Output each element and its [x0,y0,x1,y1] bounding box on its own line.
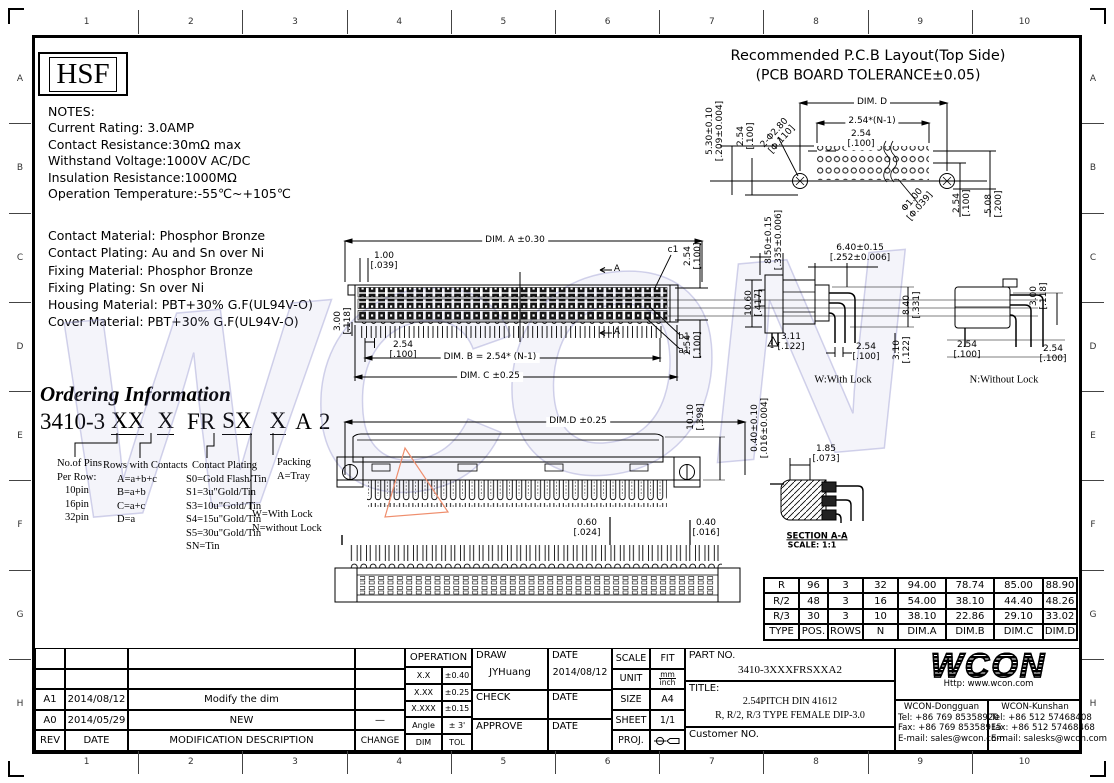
hsf-logo-text: HSF [49,57,116,92]
dim-label: 2.54 [.100] [953,189,973,216]
dim-label: 3.11 [.122] [777,333,804,353]
ordering-title: Ordering Information [40,382,231,407]
spec-cell: TYPE [764,624,799,639]
section-marker: A [614,265,620,275]
dim-label: 1.85 [.073] [812,445,839,465]
material-line: Housing Material: PBT+30% G.F(UL94V-O) [48,296,313,313]
drawing-title-line1: 2.54PITCH DIN 41612 [686,696,894,707]
spec-cell: R/2 [764,593,799,608]
row-label: c1 [668,246,679,256]
spec-cell: R/3 [764,609,799,624]
section-scale: SCALE: 1:1 [788,542,837,551]
corner-mark [1090,761,1106,777]
note-line: Current Rating: 3.0AMP [48,120,291,136]
revision-flag: 1 [770,343,774,351]
size-value: A4 [650,689,685,710]
note-line: Insulation Resistance:1000MΩ [48,170,291,186]
wcon-logo-cell: WCON Http: www.wcon.com [895,648,1082,700]
dim-label: 2.54*(N-1) [845,117,898,127]
meta-table: SCALEFIT UNIT mminch SIZEA4 SHEET1/1 PRO… [612,648,685,751]
dim-label: 0.40 [.016] [692,519,719,539]
office-email: E-mail: salesks@wcon.com [991,734,1079,745]
materials-block: Contact Material: Phosphor Bronze Contac… [48,227,313,331]
wcon-url: Http: www.wcon.com [896,679,1081,689]
dim-label: 5.08 [.200] [985,190,1005,217]
ordering-pins-legend: No.of Pins Per Row: 10pin 16pin 32pin [57,457,102,525]
spec-table: R9633294.0078.7485.0088.90 R/24831654.00… [763,577,1078,641]
view-caption: W:With Lock [814,375,871,386]
dim-label: 2.54 [.100] [684,242,704,269]
rev-header: REV [35,730,65,751]
dim-label: 0.60 [.024] [573,519,600,539]
check-cell: CHECK [472,690,548,719]
office-email: E-mail: sales@wcon.com [898,734,985,745]
dim-label: 2.54 [.100] [852,343,879,363]
rev-header: MODIFICATION DESCRIPTION [128,730,355,751]
dim-label: 5.30±0.10 [.209±0.004] [706,101,726,161]
rev-date: 2014/08/12 [65,689,128,710]
ordering-packing-legend: Packing A=Tray [277,456,311,483]
rev-date: 2014/05/29 [65,710,128,731]
dim-label: DIM. C ±0.25 [457,372,523,382]
dim-label: 2.54 [.100] [1039,345,1066,365]
material-line: Contact Material: Phosphor Bronze [48,227,313,244]
office-fax: Fax: +86 769 85358915 [898,723,985,734]
rev-desc: NEW [128,710,355,731]
dim-label: 2.54 [.100] [844,130,877,150]
material-line: Contact Plating: Au and Sn over Ni [48,244,313,261]
ordering-lock-legend: W=With Lock N=without Lock [252,508,322,535]
cover-view-drawing [325,395,775,520]
dim-label: DIM. A ±0.30 [482,236,548,246]
tolerance-title: OPERATION [405,648,472,667]
office-fax: Fax: +86 512 57468468 [991,723,1079,734]
dim-label: DIM. D [854,98,890,108]
dim-label: 8.40 [.331] [903,291,923,318]
dim-label: 0.40±0.10 [.016±0.004] [751,398,771,458]
dim-label: 10.60 [.417] [745,289,765,316]
wcon-kunshan-cell: WCON-Kunshan Tel: +86 512 57468408 Fax: … [988,700,1082,751]
border-rows-right: ABCDEFGH [1082,35,1104,748]
dim-label: 3.00 [.118] [1030,282,1050,309]
approve-cell: APPROVE [472,719,548,751]
draw-cell: DRAW JYHuang [472,648,548,690]
dim-label: 1.00 [.039] [370,252,397,272]
hsf-logo: HSF [38,52,128,96]
tolerance-table: OPERATION X.X±0.40 X.XX±0.25 X.XXX±0.15 … [405,648,472,751]
material-line: Fixing Material: Phosphor Bronze [48,262,313,279]
corner-mark [1090,8,1106,24]
border-rows-left: ABCDEFGH [9,35,31,748]
with-lock-view-drawing [700,215,930,390]
projection-symbol [650,730,685,751]
rev-header: CHANGE [355,730,405,751]
rev-change [355,689,405,710]
rev-id: A0 [35,710,65,731]
border-columns-top: 12345678910 [35,10,1076,34]
drawing-title-line2: R, R/2, R/3 TYPE FEMALE DIP-3.0 [686,710,894,721]
material-line: Fixing Plating: Sn over Ni [48,279,313,296]
office-name: WCON-Dongguan [898,702,985,713]
unit-value: mminch [650,669,685,690]
dim-label: 2.54 [.100] [953,341,980,361]
revision-table: A1 2014/08/12 Modify the dim A0 2014/05/… [35,648,405,751]
dim-label: DIM.D ±0.25 [546,417,610,427]
dim-label: 2.54 [.100] [389,341,416,361]
scale-value: FIT [650,648,685,669]
rev-id: A1 [35,689,65,710]
pcb-title: Recommended P.C.B Layout(Top Side) [731,49,1006,65]
view-caption: N:Without Lock [970,375,1039,386]
notes-block: NOTES: Current Rating: 3.0AMP Contact Re… [48,104,291,202]
dim-label: DIM. B = 2.54* (N-1) [441,353,540,363]
corner-mark [8,761,24,777]
check-date-cell: DATE [548,690,612,719]
dim-label: 10.10 [.398] [687,403,707,430]
rev-header: DATE [65,730,128,751]
draw-date: 2014/08/12 [549,667,611,678]
customer-no-cell: Customer NO. [685,727,895,751]
notes-title: NOTES: [48,104,291,120]
dim-label: 2.54 [.100] [737,122,757,149]
material-line: Cover Material: PBT+30% G.F(UL94V-O) [48,313,313,330]
sheet-value: 1/1 [650,710,685,731]
section-marker: A [614,328,620,338]
office-name: WCON-Kunshan [991,702,1079,713]
spec-cell: R [764,578,799,593]
note-line: Withstand Voltage:1000V AC/DC [48,153,291,169]
ordering-plating-legend: Contact Plating S0=Gold Flash/Tin S1=3u"… [186,459,267,554]
note-line: Operation Temperature:-55℃~+105℃ [48,186,291,202]
dim-label: 3.00 [.118] [334,307,354,334]
wcon-dongguan-cell: WCON-Dongguan Tel: +86 769 85358920 Fax:… [895,700,988,751]
office-tel: Tel: +86 769 85358920 [898,713,985,724]
part-no-cell: PART NO. 3410-3XXXFRSXXA2 [685,648,895,681]
dim-label: 8.50±0.15 [.335±0.006] [765,210,785,270]
draw-date-cell: DATE 2014/08/12 [548,648,612,690]
without-lock-view-drawing [945,265,1080,385]
border-columns-bottom: 12345678910 [35,750,1076,774]
corner-mark [8,8,24,24]
draw-name: JYHuang [473,667,547,678]
part-no-value: 3410-3XXXFRSXXA2 [686,664,894,676]
rev-desc: Modify the dim [128,689,355,710]
ordering-rows-legend: Rows with Contacts A=a+b+c B=a+b C=a+c D… [103,459,188,527]
wcon-logo: WCON [896,649,1081,683]
dim-label: 3.10 [.122] [893,336,913,363]
drawing-sheet: WCON 12345678910 12345678910 ABCDEFGH AB… [0,0,1114,783]
office-tel: Tel: +86 512 57468408 [991,713,1079,724]
note-line: Contact Resistance:30mΩ max [48,137,291,153]
rev-change: — [355,710,405,731]
dim-label: 6.40±0.15 [.252±0.006] [830,244,890,264]
title-cell: TITLE: 2.54PITCH DIN 41612 R, R/2, R/3 T… [685,681,895,727]
approve-date-cell: DATE [548,719,612,751]
pcb-subtitle: (PCB BOARD TOLERANCE±0.05) [756,68,981,83]
dim-label: 2.54 [.100] [684,331,704,358]
